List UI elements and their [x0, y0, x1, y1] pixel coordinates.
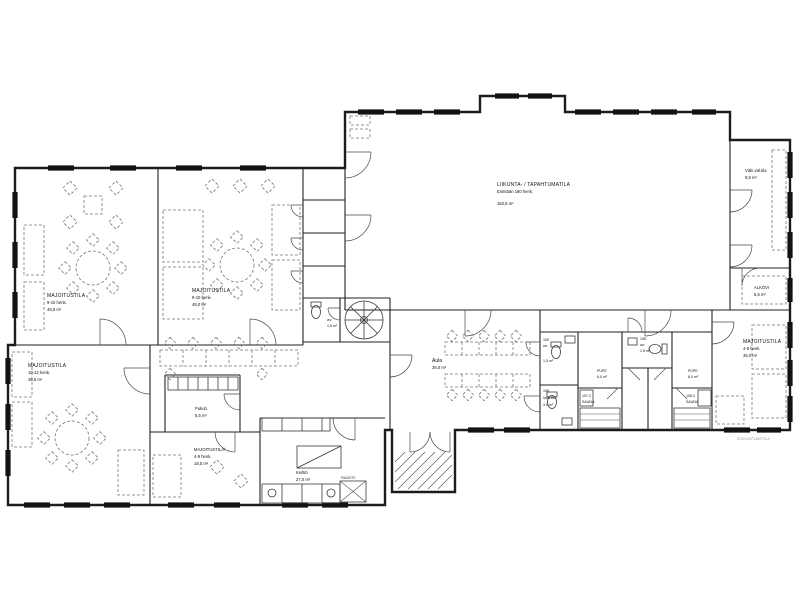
room-area: 1,5 m²: [543, 359, 554, 363]
room-name: PUPE: [597, 369, 607, 373]
room-label-pupe-1: PUPE 6,0 m²: [597, 369, 608, 379]
room-area: 6,0 m²: [688, 375, 699, 379]
room-label-pupe-2: PUPE 6,0 m²: [688, 369, 699, 379]
room-label-aula: Aula 38,0 m²: [432, 358, 447, 370]
room-capacity: 4-6 henk.: [194, 454, 211, 459]
room-area: 27,0 m²: [296, 477, 311, 482]
room-area: 6,0 m²: [597, 375, 608, 379]
entrance-steps: [395, 452, 452, 489]
room-name: wc: [543, 344, 548, 348]
furniture: [12, 116, 786, 497]
room-number: 108.2: [686, 394, 695, 398]
room-name: MAJOITUSTILA: [28, 363, 67, 369]
corner-note-text: KOKOONTUMISTILA: [737, 437, 770, 441]
room-name: MAJOITUSTILA/: [194, 447, 226, 452]
room-name: Keittiö: [296, 470, 308, 475]
room-number: 107.2: [582, 394, 591, 398]
room-area: 46,5 m²: [28, 377, 43, 382]
room-label-majoitustila-b: MAJOITUSTILA 9-10 henk. 48,0 m²: [192, 288, 231, 307]
room-label-pukuhuone: Pukuh. 5,5 m²: [195, 406, 208, 418]
room-label-majoitustila-d: MAJOITUSTILA 4-6 henk. 35,0 m²: [743, 339, 782, 358]
room-name: MAJOITUSTILA: [192, 288, 231, 294]
room-capacity: 9-10 henk.: [192, 295, 212, 300]
room-number: 106: [640, 337, 646, 341]
room-number: 105: [543, 338, 549, 342]
room-capacity: 10-12 henk.: [28, 370, 50, 375]
room-label-liikuntasali: LIIKUNTA- / TAPAHTUMATILA Enintään 180 h…: [497, 182, 571, 206]
room-name: ALKOVI: [754, 285, 769, 290]
room-area: 3,5 m²: [543, 403, 554, 407]
room-name: MAJOITUSTILA: [47, 293, 86, 299]
room-capacity: 9-10 henk.: [47, 300, 67, 305]
room-name: Väln.väl.tila: [745, 168, 767, 173]
room-area: 9,5 m²: [745, 175, 757, 180]
exterior-walls: [8, 96, 790, 505]
corner-note: KOKOONTUMISTILA: [737, 437, 770, 441]
floor-plan-page: MAJOITUSTILA 9-10 henk. 48,5 m² MAJOITUS…: [0, 0, 800, 600]
room-area: 35,0 m²: [743, 353, 758, 358]
room-name: MAJOITUSTILA: [743, 339, 782, 345]
room-area: 163,5 m²: [497, 201, 514, 206]
room-name: wc: [327, 318, 332, 322]
room-area: 48,5 m²: [47, 307, 62, 312]
room-name: Aula: [432, 358, 442, 364]
room-area: 18,5 m²: [194, 461, 209, 466]
room-name: wc: [640, 343, 645, 347]
room-area: 38,0 m²: [432, 365, 447, 370]
room-label-majoitustila-e: MAJOITUSTILA/ 4-6 henk. 18,5 m²: [194, 447, 226, 466]
room-number: 106: [543, 389, 549, 393]
room-name: PUPE: [688, 369, 698, 373]
room-capacity: Enintään 180 henk.: [497, 189, 533, 194]
room-name: SAUNA: [582, 400, 595, 404]
room-label-majoitustila-c: MAJOITUSTILA 10-12 henk. 46,5 m²: [28, 363, 67, 382]
room-name: SAUNA: [686, 400, 699, 404]
windows: [5, 93, 792, 507]
room-name: LIIKUNTA- / TAPAHTUMATILA: [497, 182, 571, 188]
interior-walls: [15, 140, 790, 505]
kitchen-fixtures: [168, 377, 366, 503]
spiral-staircase: [345, 301, 383, 339]
room-area: 5,5 m²: [195, 413, 207, 418]
floor-plan-drawing: MAJOITUSTILA 9-10 henk. 48,5 m² MAJOITUS…: [0, 0, 800, 600]
room-name: Inva-wc: [543, 396, 556, 400]
room-name: Pukuh.: [195, 406, 208, 411]
room-area: 1,5 m²: [327, 324, 338, 328]
room-name: PAKASTE: [341, 476, 355, 480]
room-capacity: 4-6 henk.: [743, 346, 760, 351]
room-label-wc-mid: 106 wc 1,5 m²: [640, 337, 651, 353]
room-area: 1,5 m²: [640, 349, 651, 353]
room-label-alkovi: ALKOVI 5,5 m²: [754, 285, 769, 297]
room-area: 48,0 m²: [192, 302, 207, 307]
room-label-majoitustila-a: MAJOITUSTILA 9-10 henk. 48,5 m²: [47, 293, 86, 312]
room-label-sauna-2: 108.2 SAUNA: [686, 394, 699, 404]
room-area: 5,5 m²: [754, 292, 766, 297]
room-label-keittio: Keittiö 27,0 m²: [296, 470, 311, 482]
room-label-valinetila: Väln.väl.tila 9,5 m²: [745, 168, 767, 180]
room-label-pakaste: PAKASTE: [341, 476, 355, 480]
